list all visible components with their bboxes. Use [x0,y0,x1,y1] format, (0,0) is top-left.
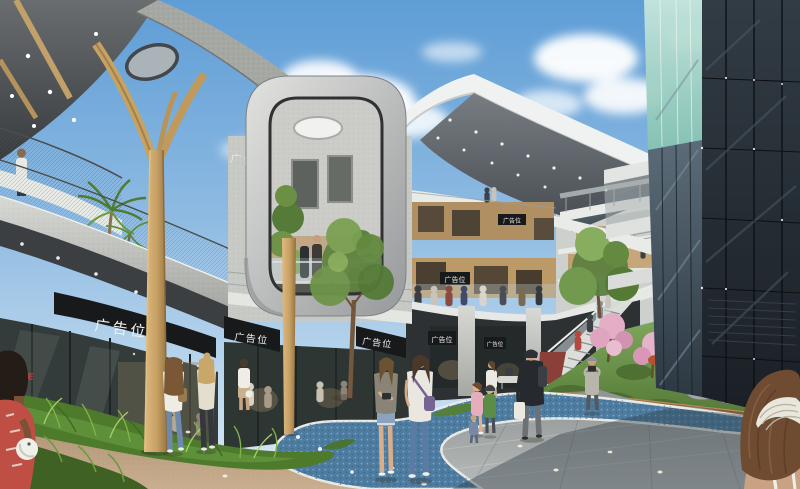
sign-ad-ground2-text: 广告位 [487,340,504,348]
plaza-scene: 广告位 广告位 广告位 广告位 [0,0,800,489]
architectural-rendering: 广告位 广告位 广告位 广告位 [0,0,800,489]
tower-green-glass [644,0,702,150]
sign-ad-balcony-text: 广告位 [445,275,466,284]
frame-oculus-light [294,117,342,139]
sign-ad-level2-text: 广告位 [503,217,521,225]
tower-left-face [648,140,702,397]
sign-ad-ground1-text: 广告位 [432,335,453,344]
column-c1 [458,306,475,396]
slim-wood-column [282,238,296,434]
